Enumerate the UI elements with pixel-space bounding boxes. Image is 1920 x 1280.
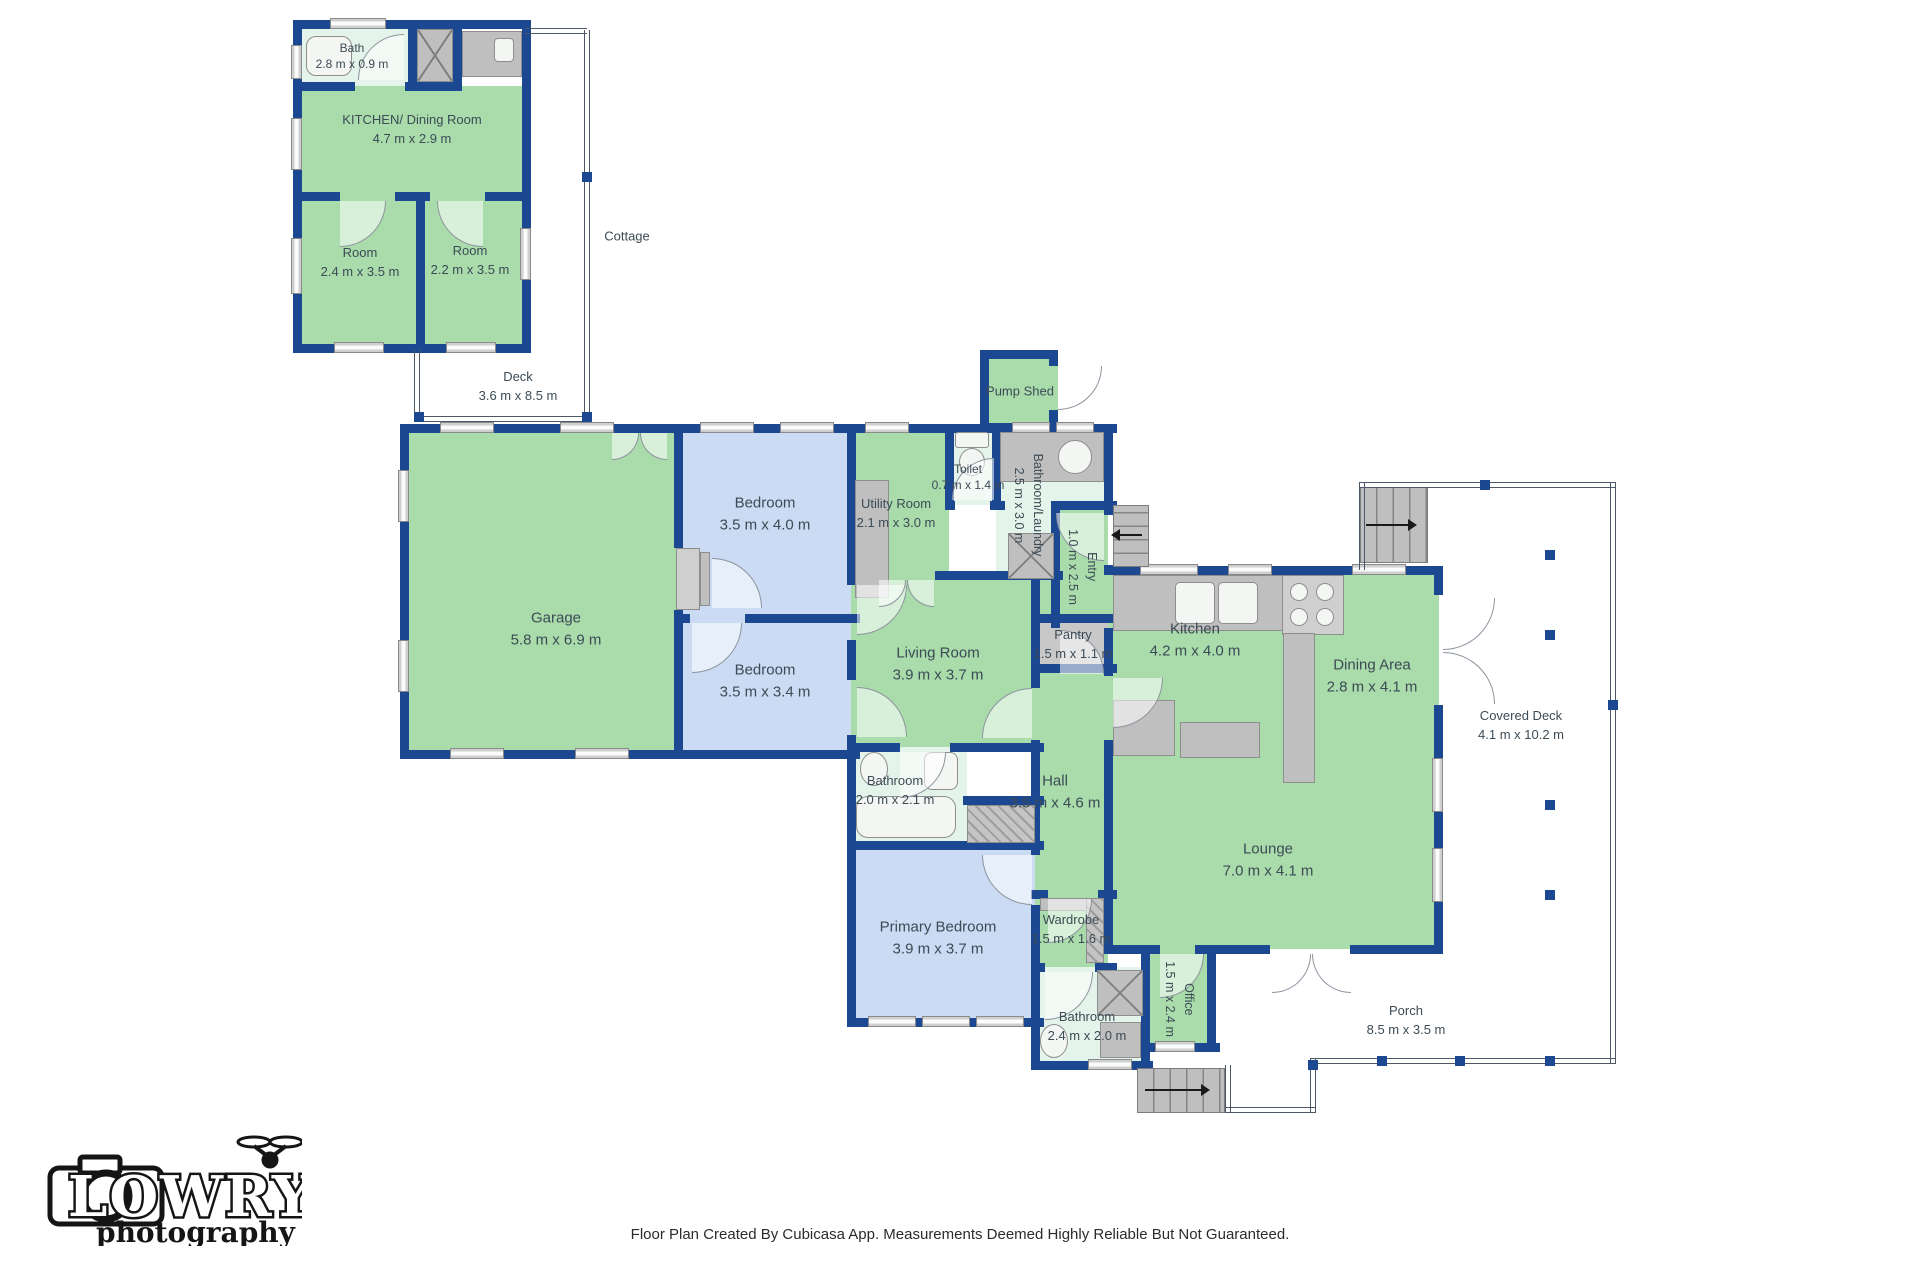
porch-rail: [1225, 1065, 1231, 1113]
door-arc: [1443, 652, 1495, 704]
burner: [1316, 608, 1334, 626]
room-label-dining: Dining Area2.8 m x 4.1 m: [1327, 654, 1418, 698]
window: [575, 748, 629, 759]
room-label-bathroom2: Bathroom2.4 m x 2.0 m: [1048, 1008, 1127, 1046]
door-arc: [1443, 598, 1495, 650]
wall: [408, 29, 417, 91]
window: [398, 640, 409, 692]
wall: [674, 610, 683, 759]
window: [446, 342, 496, 353]
wall: [950, 743, 1044, 752]
window: [780, 422, 834, 433]
window: [560, 422, 614, 433]
deck-post: [582, 412, 592, 422]
room-label-cottage-room2: Room2.2 m x 3.5 m: [431, 242, 510, 280]
room-label-lounge: Lounge7.0 m x 4.1 m: [1223, 838, 1314, 882]
label-pump-shed: Pump Shed: [986, 383, 1054, 402]
porch-post: [1455, 1056, 1465, 1066]
room-label-hall: Hall3.5 m x 4.6 m: [1010, 770, 1101, 814]
wall: [302, 192, 340, 201]
label-deck: Deck3.6 m x 8.5 m: [479, 368, 558, 406]
window: [291, 118, 302, 170]
wall: [1031, 614, 1117, 623]
window: [398, 470, 409, 522]
stairs-arrow: [1366, 524, 1414, 526]
bedroom-closet: [676, 548, 700, 610]
porch-rail: [1225, 1107, 1316, 1113]
window: [1056, 422, 1094, 433]
porch-post: [1377, 1056, 1387, 1066]
room-label-entry: Entry1.0 m x 2.5 m: [1063, 529, 1101, 605]
door-arc: [1272, 954, 1311, 993]
wall: [485, 192, 522, 201]
deck-rail: [414, 350, 420, 420]
window: [922, 1016, 970, 1027]
kitchen-bench: [1180, 722, 1260, 758]
deck-rail: [1359, 482, 1365, 570]
label-cottage: Cottage: [604, 228, 650, 247]
deck-post: [1545, 890, 1555, 900]
room-label-toilet: Toilet0.7 m x 1.4 m: [932, 461, 1005, 493]
window: [1228, 564, 1272, 575]
deck-post: [1480, 480, 1490, 490]
room-label-bathroom-laundry: Bathroom/Laundry2.5 m x 3.0 m: [1009, 454, 1047, 557]
room-label-kitchen: Kitchen4.2 m x 4.0 m: [1150, 618, 1241, 662]
window: [330, 18, 386, 29]
window: [1432, 758, 1443, 812]
window: [700, 422, 754, 433]
room-label-cottage-kitchen: KITCHEN/ Dining Room4.7 m x 2.9 m: [342, 111, 481, 149]
room-label-cottage-bath: Bath2.8 m x 0.9 m: [316, 40, 389, 72]
stairs-arrow: [1120, 534, 1142, 536]
window: [291, 45, 302, 79]
window: [868, 1016, 916, 1027]
label-covered-deck: Covered Deck4.1 m x 10.2 m: [1478, 707, 1564, 745]
porch-post: [1308, 1060, 1318, 1070]
burner: [1316, 583, 1334, 601]
deck-rail: [1610, 482, 1616, 1064]
deck-post: [414, 412, 424, 422]
porch-post: [1545, 1056, 1555, 1066]
burner: [1290, 608, 1308, 626]
wall: [1434, 566, 1443, 595]
deck-post: [1545, 550, 1555, 560]
deck-rail: [584, 30, 590, 422]
window: [440, 422, 494, 433]
disclaimer-text: Floor Plan Created By Cubicasa App. Meas…: [0, 1226, 1920, 1243]
window: [520, 228, 531, 280]
wall: [453, 29, 462, 82]
room-label-primary: Primary Bedroom3.9 m x 3.7 m: [880, 916, 997, 960]
window: [1088, 1059, 1132, 1070]
window: [450, 748, 504, 759]
wall: [416, 201, 425, 344]
wall: [395, 192, 430, 201]
floor-plan: Bath2.8 m x 0.9 m KITCHEN/ Dining Room4.…: [0, 0, 1920, 1280]
wall: [302, 82, 355, 91]
wall: [847, 640, 856, 680]
room-label-utility: Utility Room2.1 m x 3.0 m: [857, 495, 936, 533]
room-label-office: Office1.5 m x 2.4 m: [1160, 961, 1198, 1037]
deck-post: [1608, 700, 1618, 710]
door-arc: [1058, 366, 1102, 410]
room-label-bedroom2: Bedroom3.5 m x 3.4 m: [720, 659, 811, 703]
room-label-pantry: Pantry1.5 m x 1.1 m: [1034, 626, 1113, 664]
room-label-wardrobe: Wardrobe1.5 m x 1.6 m: [1032, 911, 1111, 949]
laundry-sink: [1058, 440, 1092, 474]
stairs-arrow: [1145, 1089, 1207, 1091]
sink: [494, 38, 514, 62]
room-label-garage: Garage5.8 m x 6.9 m: [511, 607, 602, 651]
window: [865, 422, 909, 433]
window: [334, 342, 384, 353]
room-label-living: Living Room3.9 m x 3.7 m: [893, 642, 984, 686]
wall: [1104, 565, 1113, 575]
drone-icon: [238, 1137, 302, 1167]
burner: [1290, 583, 1308, 601]
room-label-bedroom1: Bedroom3.5 m x 4.0 m: [720, 492, 811, 536]
stove: [1282, 575, 1344, 635]
toilet-fixture: [955, 432, 989, 448]
bedroom-closet-door: [700, 552, 710, 606]
deck-post: [1545, 630, 1555, 640]
window: [976, 1016, 1024, 1027]
window: [1012, 422, 1050, 433]
wall: [1104, 424, 1113, 515]
deck-post: [582, 172, 592, 182]
garage-floor: [404, 428, 678, 754]
window: [1155, 1041, 1195, 1052]
wall: [745, 614, 860, 623]
window: [291, 238, 302, 294]
label-porch: Porch8.5 m x 3.5 m: [1367, 1002, 1446, 1040]
deck-post: [1545, 800, 1555, 810]
shower: [417, 29, 453, 82]
door-arc: [1312, 954, 1351, 993]
wall: [1434, 705, 1443, 954]
room-label-bathroom1: Bathroom2.0 m x 2.1 m: [856, 772, 935, 810]
deck-rail: [525, 28, 587, 34]
wall: [1350, 945, 1443, 954]
kitchen-island: [1283, 633, 1315, 783]
wall: [1207, 945, 1216, 1052]
room-label-cottage-room1: Room2.4 m x 3.5 m: [321, 244, 400, 282]
wall: [674, 424, 683, 548]
window: [1432, 848, 1443, 902]
